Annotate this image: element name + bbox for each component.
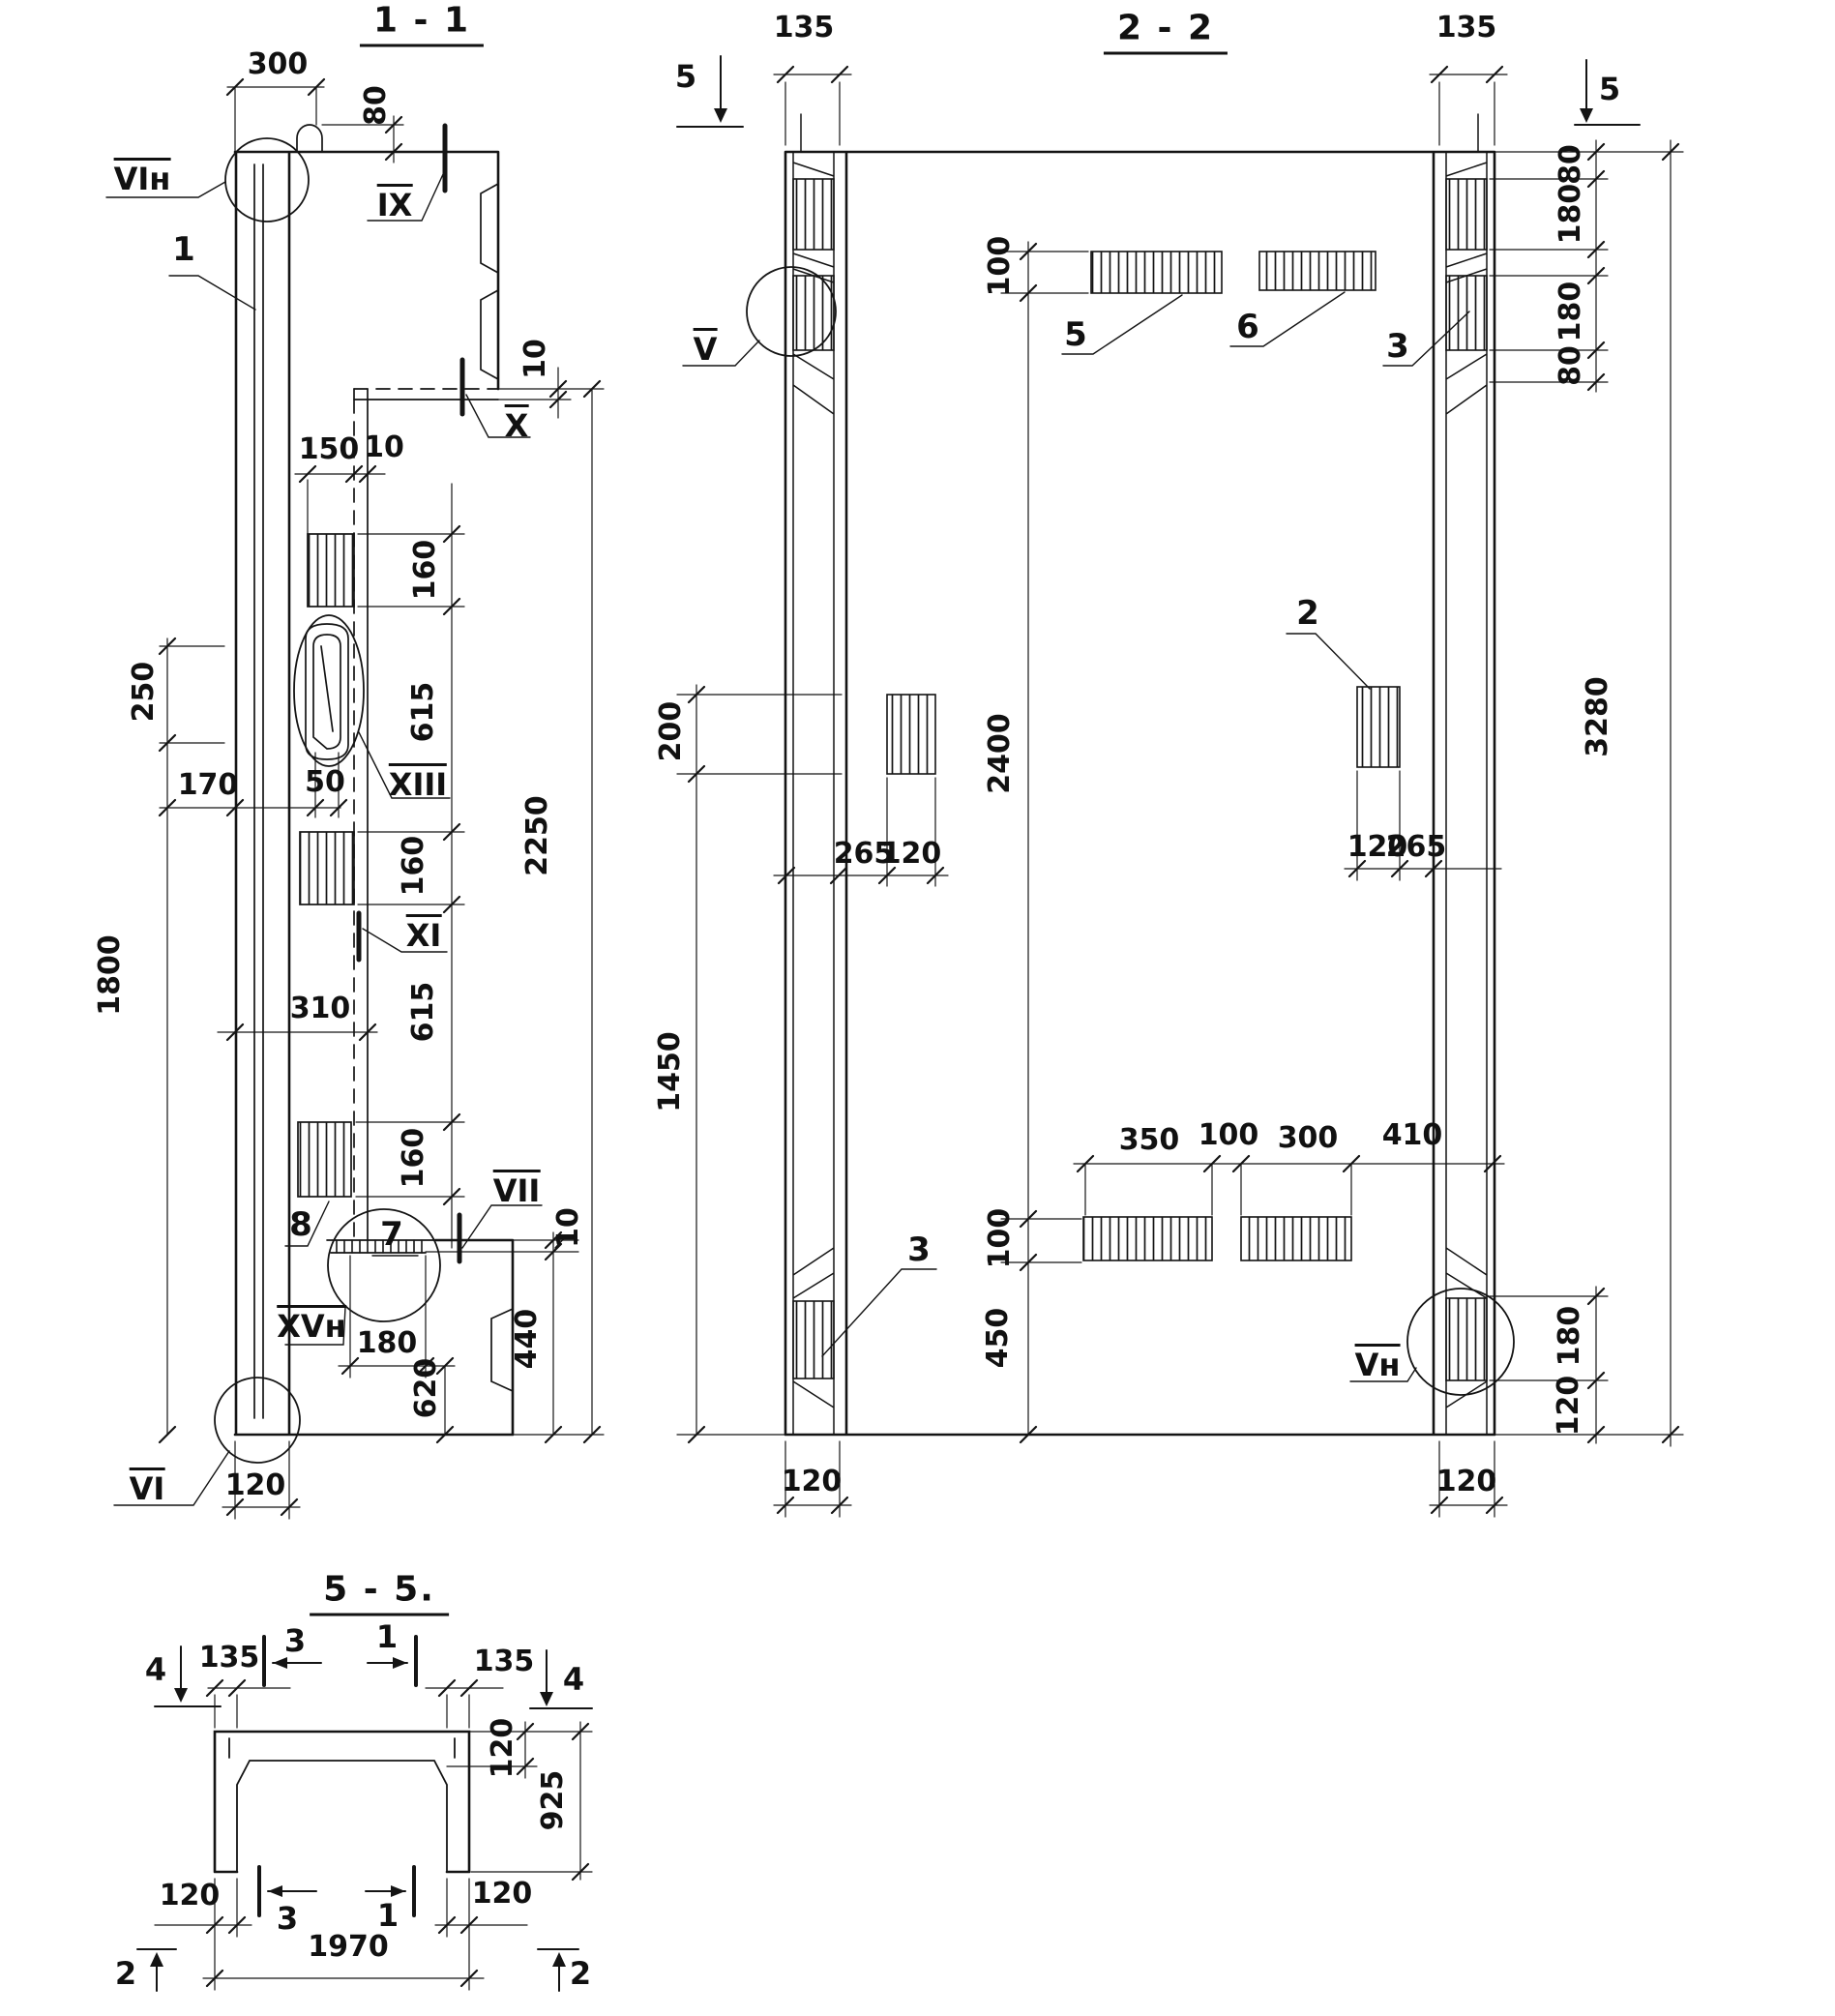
mesh-bar-hatch [1357, 687, 1400, 767]
rib-rebar-hatch [1446, 179, 1487, 250]
drawing-canvas: 1 - 130080VIн1IX10X1501016061525017050XI… [0, 0, 1835, 2016]
top-bar-hatch-item6 [1259, 252, 1376, 290]
bottom-bar-hatch [1241, 1217, 1351, 1260]
rib-rebar-hatch [1446, 1298, 1487, 1380]
structure-5-5 [229, 1738, 455, 1872]
rib-rebar-hatch [793, 1301, 834, 1379]
drawing-geometry [0, 0, 1835, 2016]
mesh-bar-hatch [887, 695, 935, 774]
outline-1-1 [235, 152, 513, 1435]
cut-mark-lines-2-2 [677, 56, 1640, 127]
cut-mark-bars-5-5 [259, 1637, 416, 1915]
detail-circle-vi [215, 1378, 300, 1463]
rib-rebar-hatch [1446, 276, 1487, 350]
section-5-5-geometry [137, 1637, 592, 1991]
outline-5-5 [215, 1732, 469, 1872]
hidden-lines-1-1 [354, 389, 498, 1240]
rebar-section-hatch [308, 534, 354, 607]
section-cut-bars-1-1 [359, 126, 462, 1261]
top-bar-hatch-item5 [1091, 252, 1222, 293]
detail-circle-7 [328, 1209, 440, 1321]
structure-1-1 [254, 125, 513, 1418]
dimension-lines-1-1 [160, 87, 604, 1519]
cut-mark-lines-5-5 [137, 1646, 592, 1991]
bottom-bar-hatch [1083, 1217, 1212, 1260]
cut-mark-arrowheads-2-2 [714, 108, 1593, 123]
rib-rebar-hatch [793, 179, 834, 250]
dimension-ticks-5-5 [207, 1680, 588, 1986]
dimension-lines-5-5 [155, 1688, 592, 1990]
cut-mark-arrowheads-5-5 [150, 1657, 566, 1967]
serration-detail-7 [337, 1240, 422, 1253]
rebar-section-hatch [298, 1122, 351, 1197]
dimension-ticks-1-1 [160, 79, 600, 1515]
section-2-2-geometry [677, 56, 1683, 1517]
section-1-1-geometry [106, 79, 604, 1519]
rebar-section-hatch [300, 832, 354, 904]
